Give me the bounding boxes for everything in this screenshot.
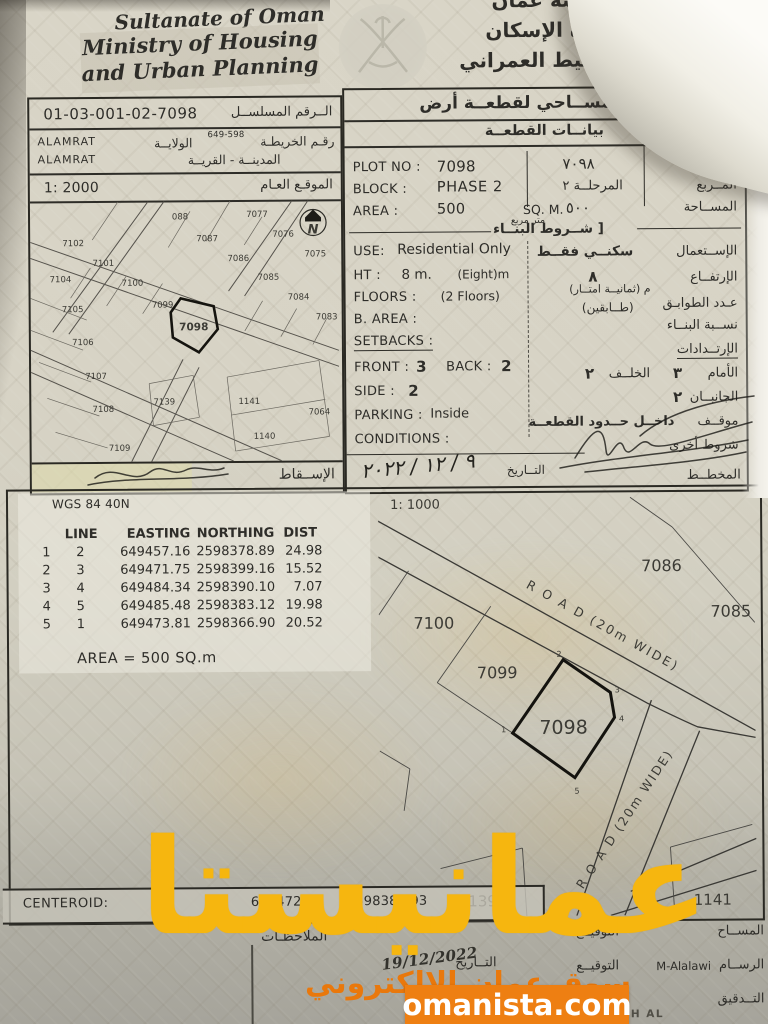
plot-no-label: PLOT NO : xyxy=(353,160,421,175)
line-to: 4 xyxy=(71,581,91,596)
watermark-main: عمانيستا xyxy=(140,822,709,954)
parking-label: PARKING : xyxy=(354,408,422,423)
back-value: 2 xyxy=(501,357,512,375)
draftsman-label: الرســام xyxy=(719,957,764,972)
line-from: 4 xyxy=(37,599,57,614)
col-header-northing: NORTHING xyxy=(196,526,274,542)
line-from: 1 xyxy=(36,545,56,560)
use-value: Residential Only xyxy=(397,241,511,258)
front-value-ar: ٣ xyxy=(673,364,682,382)
projection-label: الإســقاط xyxy=(279,466,335,482)
svg-text:7104: 7104 xyxy=(50,275,72,285)
dist: 7.07 xyxy=(279,579,323,594)
easting: 649457.16 xyxy=(114,544,190,560)
svg-text:7087: 7087 xyxy=(196,234,218,244)
line-to: 1 xyxy=(71,617,91,632)
northing: 2598366.90 xyxy=(197,616,275,632)
svg-text:5: 5 xyxy=(574,787,579,796)
svg-text:2: 2 xyxy=(557,650,562,659)
survey-date-label: التــاريخ xyxy=(507,463,545,477)
svg-text:088: 088 xyxy=(172,212,188,222)
wilaya-value: ALAMRAT xyxy=(37,135,96,148)
back-value-ar: ٢ xyxy=(585,365,594,383)
height-value: 8 m. xyxy=(401,267,431,283)
height-label-ar: الإرتفــاع xyxy=(690,270,737,285)
map-number-label: رقـم الخريطـة xyxy=(260,133,334,149)
height-label: HT : xyxy=(353,268,381,283)
floors-value-ar: (طــابقين) xyxy=(582,300,634,314)
road-label-1: R O A D (20m WIDE) xyxy=(524,577,682,674)
front-label: FRONT : xyxy=(354,360,409,375)
height-note-ar: م (ثمانيــة امتــار) xyxy=(569,282,650,296)
front-label-ar: الأمام xyxy=(708,366,739,381)
svg-text:7075: 7075 xyxy=(304,249,326,259)
svg-text:7102: 7102 xyxy=(62,239,84,249)
dist: 24.98 xyxy=(278,543,322,558)
block-value: PHASE 2 xyxy=(437,179,503,195)
svg-text:1: 1 xyxy=(501,725,506,734)
side-value: 2 xyxy=(408,382,419,400)
svg-text:7085: 7085 xyxy=(710,601,751,620)
datum-label: WGS 84 40N xyxy=(52,497,130,512)
svg-text:7099: 7099 xyxy=(152,300,174,310)
block-label: BLOCK : xyxy=(353,182,407,197)
oman-national-emblem-icon xyxy=(339,4,428,91)
use-value-ar: سكنــي فقــط xyxy=(537,243,634,260)
svg-text:7064: 7064 xyxy=(309,407,331,417)
other-conditions-label-ar: شروط أخرى xyxy=(669,438,739,453)
svg-text:7101: 7101 xyxy=(92,259,114,269)
col-header-line: LINE xyxy=(52,527,110,542)
divider xyxy=(637,228,741,230)
easting: 649484.34 xyxy=(115,580,191,596)
wilaya-label: الولايــة xyxy=(154,135,192,150)
northing: 2598390.10 xyxy=(197,580,275,596)
svg-text:7086: 7086 xyxy=(641,556,682,575)
building-ratio-label-ar: نســبة البنــاء xyxy=(667,318,738,333)
svg-text:7108: 7108 xyxy=(93,405,115,415)
northing: 2598378.89 xyxy=(196,544,274,560)
building-conditions-title: [ شــروط البنــاء xyxy=(493,220,604,237)
area-value-ar: ٥٠٠ xyxy=(566,199,590,217)
line-from: 5 xyxy=(37,617,57,632)
height-note: (Eight)m xyxy=(457,267,509,281)
svg-text:7100: 7100 xyxy=(413,614,454,633)
svg-text:7077: 7077 xyxy=(246,210,268,220)
dist: 15.52 xyxy=(278,561,322,576)
svg-text:7107: 7107 xyxy=(85,372,107,382)
block-value-ar: المرحلــة ٢ xyxy=(562,178,622,193)
overview-scale-value: 1: 2000 xyxy=(44,180,99,196)
centeroid-label: CENTEROID: xyxy=(23,896,109,912)
front-value: 3 xyxy=(416,358,427,376)
emblem-glyph xyxy=(339,4,428,91)
line-from: 3 xyxy=(37,581,57,596)
building-area-label: B. AREA : xyxy=(354,312,418,327)
scanned-survey-document: Sultanate of Oman Ministry of Housing an… xyxy=(0,0,768,1024)
parking-label-ar: موقــف xyxy=(697,414,738,429)
photo-top-shadow xyxy=(0,0,330,12)
easting: 649471.75 xyxy=(114,562,190,578)
setbacks-label: SETBACKS : xyxy=(354,334,433,352)
northing: 2598383.12 xyxy=(197,598,275,614)
divider xyxy=(29,126,340,130)
setbacks-title-ar: الإرتــدادات xyxy=(677,342,738,359)
svg-text:7139: 7139 xyxy=(153,397,175,407)
svg-text:7106: 7106 xyxy=(72,338,94,348)
divider xyxy=(527,151,529,207)
surveyor-label: المســاح xyxy=(717,923,764,938)
col-header-dist: DIST xyxy=(278,525,322,540)
sides-value-ar: ٢ xyxy=(673,388,682,406)
site-plan-label: الموقـع العـام xyxy=(260,177,333,193)
sides-label-ar: الجانبــان xyxy=(690,390,739,405)
col-header-easting: EASTING xyxy=(114,526,190,542)
area-note: AREA = 500 SQ.m xyxy=(77,650,217,667)
plot-value-ar: ٧٠٩٨ xyxy=(562,155,594,173)
svg-text:N: N xyxy=(308,222,319,237)
serial-number-label: الــرقم المسلســل xyxy=(231,104,333,120)
floors-label: FLOORS : xyxy=(354,290,417,305)
svg-text:4: 4 xyxy=(619,714,624,723)
line-to: 2 xyxy=(70,545,90,560)
floors-value: (2 Floors) xyxy=(441,288,500,303)
svg-text:7076: 7076 xyxy=(272,230,294,240)
line-to: 5 xyxy=(71,599,91,614)
floors-label-ar: عـدد الطوابـق xyxy=(662,296,737,312)
coordinates-table: LINE EASTING NORTHING DIST 1 2 649457.16… xyxy=(24,519,345,691)
city-value: ALAMRAT xyxy=(38,153,97,166)
planner-label-ar: المخطــط xyxy=(687,468,741,483)
svg-text:3: 3 xyxy=(615,685,620,694)
dist: 20.52 xyxy=(279,615,323,630)
area-label: AREA : xyxy=(353,204,398,219)
map-number-value: 649-598 xyxy=(207,130,244,140)
detail-scale-label: 1: 1000 xyxy=(390,498,440,513)
svg-text:7098: 7098 xyxy=(539,717,588,739)
serial-number-value: 01-03-001-02-7098 xyxy=(43,104,197,123)
use-label: USE: xyxy=(353,244,385,259)
use-label-ar: الإســتعمال xyxy=(676,244,737,259)
svg-text:7105: 7105 xyxy=(62,305,84,315)
overview-map: 088 7077 7087 7076 7102 7086 7101 7075 7… xyxy=(30,200,340,462)
line-from: 2 xyxy=(36,563,56,578)
city-village-label: المدينــة - القريــة xyxy=(188,152,281,168)
area-label-ar: المســاحة xyxy=(684,200,737,215)
divider xyxy=(349,231,491,233)
column-divider-dashed xyxy=(527,241,529,437)
svg-text:7098: 7098 xyxy=(179,321,208,333)
dist: 19.98 xyxy=(279,597,323,612)
northing: 2598399.16 xyxy=(196,562,274,578)
easting: 649485.48 xyxy=(115,598,191,614)
svg-text:1140: 1140 xyxy=(254,432,276,442)
reference-box: 01-03-001-02-7098 الــرقم المسلســل ALAM… xyxy=(27,95,345,495)
area-value: 500 xyxy=(437,201,465,217)
svg-text:7086: 7086 xyxy=(227,254,249,264)
plot-labels: 088 7077 7087 7076 7102 7086 7101 7075 7… xyxy=(49,209,338,454)
svg-text:7100: 7100 xyxy=(122,279,144,289)
divider xyxy=(30,171,341,175)
parking-value: Inside xyxy=(430,406,469,421)
back-label-ar: الخلــف xyxy=(609,366,650,381)
svg-text:1141: 1141 xyxy=(238,397,260,407)
checker-label: التــدقيق xyxy=(718,991,765,1006)
conditions-label: CONDITIONS : xyxy=(355,432,450,448)
north-arrow-icon: N xyxy=(300,209,326,237)
svg-text:7084: 7084 xyxy=(288,293,310,303)
plot-no-value: 7098 xyxy=(437,157,476,175)
watermark-site-badge: omanista.com xyxy=(405,985,629,1024)
svg-text:7099: 7099 xyxy=(477,663,518,682)
svg-text:7083: 7083 xyxy=(316,312,338,322)
line-to: 3 xyxy=(70,563,90,578)
side-label: SIDE : xyxy=(354,384,395,399)
svg-text:7109: 7109 xyxy=(109,444,131,454)
photo-left-shadow xyxy=(0,0,26,430)
parking-value-ar: داخــل حــدود القطعــة xyxy=(528,414,674,430)
svg-text:7085: 7085 xyxy=(258,273,280,283)
easting: 649473.81 xyxy=(115,616,191,632)
back-label: BACK : xyxy=(446,359,492,374)
